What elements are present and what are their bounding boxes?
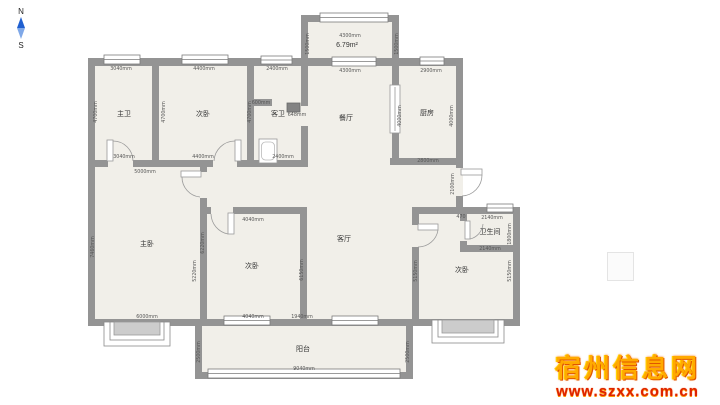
room-label: 阳台 xyxy=(296,344,310,353)
dimension-label: 2140mm xyxy=(481,215,503,221)
dimension-label: 4300mm xyxy=(339,68,361,74)
dimension-label: 4000mm xyxy=(449,105,455,127)
compass: N S xyxy=(17,7,25,50)
room-label: 6.79m² xyxy=(336,42,358,49)
dimension-label: 600mm xyxy=(252,100,271,106)
room-label: 次卧 xyxy=(196,109,210,118)
room-label: 主卧 xyxy=(140,239,154,248)
dimension-label: 3040mm xyxy=(110,66,132,72)
compass-arrow-icon xyxy=(17,28,25,39)
room-label: 客卫 xyxy=(271,109,285,118)
dimension-label: 1800mm xyxy=(507,223,513,245)
dimension-label: 648mm xyxy=(288,112,307,118)
dimension-label: 6150mm xyxy=(299,259,305,281)
dimension-label: 5000mm xyxy=(134,169,156,175)
dimension-label: 5220mm xyxy=(192,260,198,282)
dimension-label: 4700mm xyxy=(93,101,99,123)
dimension-label: 2400mm xyxy=(266,66,288,72)
room-label: 餐厅 xyxy=(339,113,353,122)
dimension-label: 6000mm xyxy=(136,314,158,320)
floorplan-svg: N S xyxy=(0,0,720,405)
dimension-label: 2140mm xyxy=(479,246,501,252)
dimension-label: 6220mm xyxy=(200,232,206,254)
dimension-label: 4040mm xyxy=(242,217,264,223)
dimension-label: 4000mm xyxy=(397,105,403,127)
room-label: 卫生间 xyxy=(480,227,501,236)
dimension-label: 9040mm xyxy=(293,366,315,372)
room-label: 次卧 xyxy=(245,261,259,270)
dimension-label: 5150mm xyxy=(413,260,419,282)
room-label: 厨房 xyxy=(420,108,434,117)
room-label: 次卧 xyxy=(455,265,469,274)
dimension-label: 470 xyxy=(456,214,465,220)
dimension-label: 4040mm xyxy=(242,314,264,320)
compass-south-label: S xyxy=(18,41,23,50)
floorplan-page: N S xyxy=(0,0,720,405)
dimension-label: 1940mm xyxy=(291,314,313,320)
room-label: 主卫 xyxy=(117,109,131,118)
dimension-label: 2800mm xyxy=(417,158,439,164)
dimension-label: 4300mm xyxy=(339,33,361,39)
watermark-url: www.szxx.com.cn xyxy=(540,384,715,399)
dimension-label: 4400mm xyxy=(192,154,214,160)
dimension-label: 2500mm xyxy=(196,341,202,363)
dimension-label: 7460mm xyxy=(90,236,96,258)
dimension-label: 4700mm xyxy=(161,101,167,123)
faint-artifact-box xyxy=(607,252,634,281)
compass-north-label: N xyxy=(18,7,24,16)
compass-arrow-icon xyxy=(17,17,25,28)
dimension-label: 4400mm xyxy=(193,66,215,72)
room-label: 客厅 xyxy=(337,234,351,243)
dimension-label: 3040mm xyxy=(113,154,135,160)
watermark: 宿州信息网 www.szxx.com.cn xyxy=(540,356,715,399)
dimension-label: 5150mm xyxy=(507,260,513,282)
watermark-title: 宿州信息网 xyxy=(540,356,715,382)
dimension-label: 2500mm xyxy=(405,341,411,363)
dimension-label: 2400mm xyxy=(272,154,294,160)
dimension-label: 2900mm xyxy=(420,68,442,74)
dimension-label: 2100mm xyxy=(450,173,456,195)
dimension-label: 1500mm xyxy=(394,33,400,55)
dimension-label: 1500mm xyxy=(305,33,311,55)
